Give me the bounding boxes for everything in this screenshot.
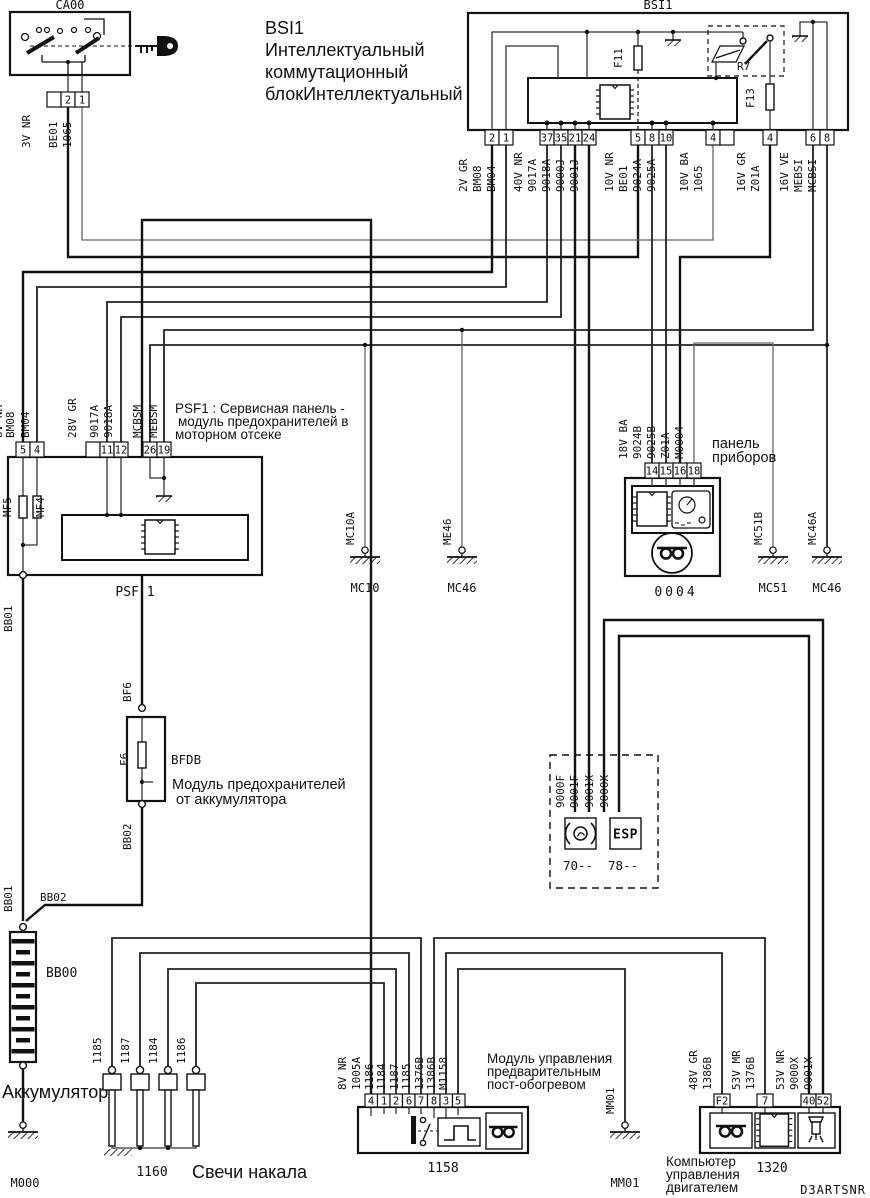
wire-label: 9001X xyxy=(583,775,596,808)
bfdb-id: BFDB xyxy=(171,752,201,767)
bsi-pin: 4 xyxy=(710,133,716,145)
bsi-pin: 21 xyxy=(569,133,582,145)
gauge-label: 2V GR xyxy=(457,159,470,192)
pin: 3 xyxy=(443,1096,449,1108)
wire-label: 9000X xyxy=(788,1057,801,1090)
wire-label: 9000J xyxy=(554,159,567,192)
gauge-label: 28V GR xyxy=(66,398,79,438)
wire-label: 9024B xyxy=(631,426,644,459)
gauge-label: 18V BA xyxy=(617,419,630,459)
module-1158-connector: 4 1 2 6 7 8 3 5 xyxy=(365,1094,465,1108)
abs-ref-label: 70-- xyxy=(563,858,593,873)
gauge-label: 40V NR xyxy=(512,152,525,192)
wire-label: Z01A xyxy=(659,432,672,459)
cluster-pin: 15 xyxy=(660,466,673,478)
note-line: двигателем xyxy=(666,1180,738,1195)
wire-label: 9018A xyxy=(540,159,553,192)
ground-id: MC46 xyxy=(813,581,842,595)
fuse-f13 xyxy=(766,84,774,110)
wire-label: MEBSI xyxy=(792,159,805,192)
wire-label: 1005A xyxy=(350,1057,363,1090)
ground-id: MM01 xyxy=(611,1176,640,1190)
ground-hatch xyxy=(104,1149,132,1156)
wire-label: 9001J xyxy=(568,159,581,192)
wire-label: 9025B xyxy=(645,426,658,459)
fuse-f11-label: F11 xyxy=(612,48,625,68)
note-line: BSI1 xyxy=(265,18,304,38)
wire-label: MEBSM xyxy=(147,405,160,438)
psf1-pin: 26 xyxy=(144,445,157,457)
ca00-pin: 1 xyxy=(79,95,85,107)
wire-label-bf6: BF6 xyxy=(121,682,134,702)
ground-id: M000 xyxy=(11,1176,40,1190)
chip-icon xyxy=(596,85,634,119)
pin: 7 xyxy=(418,1096,424,1108)
pin: 6 xyxy=(406,1096,412,1108)
gauge-label: 10V BA xyxy=(678,152,691,192)
wire-label-bb02: BB02 xyxy=(40,891,67,904)
cluster-pin: 18 xyxy=(688,466,701,478)
wire-label: 9001F xyxy=(568,775,581,808)
psf1-bottom-terminal xyxy=(20,572,27,579)
bsi-pin: 5 xyxy=(635,133,641,145)
bsi-pin: 24 xyxy=(583,133,596,145)
pin: 4 xyxy=(368,1096,374,1108)
fuse-mf5-label: MF5 xyxy=(1,497,14,517)
wire-label: 1186 xyxy=(175,1038,188,1065)
wire-label: 9017A xyxy=(526,159,539,192)
wire-label: 9024A xyxy=(631,159,644,192)
note-line: Интеллектуальный xyxy=(265,40,425,60)
wire-label-be01: BE01 xyxy=(47,122,60,149)
wire-label: 1184 xyxy=(147,1037,160,1064)
bsi-pin: 8 xyxy=(824,133,830,145)
ca00-id: CA00 xyxy=(56,0,85,12)
schematic-canvas: CA00 2 1 3V NR BE01 1065 xyxy=(0,0,870,1198)
pin: 2 xyxy=(393,1096,399,1108)
wire-label: M1158 xyxy=(437,1057,450,1090)
wire-label: 1187 xyxy=(119,1038,132,1065)
wire-label: BE01 xyxy=(617,166,630,193)
wire-label: Z01A xyxy=(749,165,762,192)
wire-label-bb01: BB01 xyxy=(2,886,15,913)
gauge-label: 16V GR xyxy=(735,152,748,192)
pin: 52 xyxy=(817,1096,830,1108)
wire-label-bb01: BB01 xyxy=(2,606,15,633)
wire-label: 9017A xyxy=(88,405,101,438)
esp-label: ESP xyxy=(613,828,638,843)
note-line: от аккумулятора xyxy=(176,792,287,808)
cluster-id: 0004 xyxy=(654,585,697,600)
wire-label: 9001X xyxy=(802,1057,815,1090)
wire-label: 9000F xyxy=(554,775,567,808)
bsi-pin: 37 xyxy=(541,133,554,145)
fuse-f6-label: F6 xyxy=(118,753,131,766)
ground-id: MC51 xyxy=(759,581,788,595)
ca00-box xyxy=(10,12,130,75)
bsi-pin: 8 xyxy=(649,133,655,145)
ca00-gauge-label: 3V NR xyxy=(20,115,33,148)
note-line: Модуль предохранителей xyxy=(172,777,346,793)
wire-label: 1386B xyxy=(701,1057,714,1090)
fuse-f11 xyxy=(634,46,642,70)
relay-coil-bar xyxy=(411,1116,416,1144)
wire-label: MC51B xyxy=(752,512,765,545)
pin: 7 xyxy=(762,1096,768,1108)
note-line: блокИнтеллектуальный xyxy=(265,84,463,104)
wire-label: 1185 xyxy=(91,1038,104,1065)
wire-label-bb02: BB02 xyxy=(121,824,134,851)
psf1-pin: 11 xyxy=(101,445,114,457)
ground-id: MC10 xyxy=(351,581,380,595)
wire-label: MCBSM xyxy=(131,405,144,438)
bsi-pin: 1 xyxy=(503,133,509,145)
gauge-label: 16V VE xyxy=(778,152,791,192)
pin: 8 xyxy=(431,1096,437,1108)
wire-label: BM04 xyxy=(19,411,32,438)
wire-label: MC46A xyxy=(806,512,819,545)
pin: F2 xyxy=(716,1096,729,1108)
battery-id: BB00 xyxy=(46,966,77,981)
bsi1-id: BSI1 xyxy=(644,0,673,12)
gauge-label: 8V NR xyxy=(336,1057,349,1090)
ca00-pin: 2 xyxy=(65,95,71,107)
note-line: пост-обогревом xyxy=(487,1077,586,1092)
wire-label: ME46 xyxy=(441,519,454,546)
wire-label: BM08 xyxy=(471,166,484,193)
wire-label: 1065 xyxy=(692,166,705,193)
esp-ref-label: 78-- xyxy=(608,858,638,873)
pin: 1 xyxy=(381,1096,387,1108)
ca00-connector: 2 1 xyxy=(47,92,89,107)
note-line: коммутационный xyxy=(265,62,408,82)
ground-icon-bsi-left xyxy=(665,40,681,46)
gauge-label: 53V NR xyxy=(774,1050,787,1090)
relay-r7-label: R7 xyxy=(737,60,750,73)
note-line: моторном отсеке xyxy=(175,427,282,442)
ground-icon-psf1 xyxy=(156,496,172,502)
wire-label: BM08 xyxy=(4,412,17,439)
cluster-pin: 16 xyxy=(674,466,687,478)
ground-icon-bsi-right xyxy=(792,36,808,42)
wire-label-1065: 1065 xyxy=(61,122,74,149)
wire-label: 9000X xyxy=(598,775,611,808)
bsi-pin: 6 xyxy=(810,133,816,145)
document-code: D3ARTSNR xyxy=(800,1183,866,1197)
wiring-diagram-page: CA00 2 1 3V NR BE01 1065 xyxy=(0,0,870,1198)
fuse-mf5 xyxy=(19,496,27,518)
ecu-note: Компьютер управления двигателем xyxy=(666,1154,740,1195)
fuse-mf4-label: MF4 xyxy=(34,497,47,517)
psf1-pin: 4 xyxy=(34,445,40,457)
glow-id: 1160 xyxy=(136,1165,167,1180)
pin: 5 xyxy=(455,1096,461,1108)
bsi-pin: 35 xyxy=(555,133,568,145)
bsi-pin: 4 xyxy=(767,133,773,145)
wire-label: 1376B xyxy=(744,1057,757,1090)
chip-icon xyxy=(756,1114,792,1146)
ground-id: MC46 xyxy=(448,581,477,595)
battery-note: Аккумулятор xyxy=(2,1082,108,1102)
module-1158-id: 1158 xyxy=(427,1161,458,1176)
wire-label: 9025A xyxy=(645,159,658,192)
gauge-label: 10V NR xyxy=(603,152,616,192)
gauge-label: 48V GR xyxy=(687,1050,700,1090)
gauge-label: 53V MR xyxy=(730,1050,743,1090)
ecu-id: 1320 xyxy=(756,1161,787,1176)
fuse-f6 xyxy=(138,742,146,768)
psf1-pin: 19 xyxy=(158,445,171,457)
gauge-icon xyxy=(672,491,710,528)
wire-label: MM01 xyxy=(604,1088,617,1115)
wire-label: BM04 xyxy=(485,165,498,192)
glow-note: Свечи накала xyxy=(192,1162,308,1182)
fuse-f13-label: F13 xyxy=(744,88,757,108)
psf1-connectors: 5 4 11 12 26 19 xyxy=(16,442,171,457)
psf1-id: PSF 1 xyxy=(115,585,154,600)
cluster-connector: 14 15 16 18 xyxy=(645,463,701,478)
psf1-pin: 5 xyxy=(20,445,26,457)
psf1-pin: 12 xyxy=(115,445,128,457)
note-line: приборов xyxy=(712,450,777,466)
bsi-pin: 10 xyxy=(660,133,673,145)
wire-label: MC10A xyxy=(344,512,357,545)
cluster-pin: 14 xyxy=(646,466,659,478)
bsi-pin: 2 xyxy=(489,133,495,145)
bsi1-inner-box xyxy=(528,78,737,123)
chip-icon xyxy=(141,520,179,554)
chip-icon xyxy=(633,492,671,526)
wire-label: 1184 xyxy=(375,1063,388,1090)
wire-label: M0004 xyxy=(673,426,686,459)
wire-label: 1185 xyxy=(400,1064,413,1091)
pin: 40 xyxy=(803,1096,816,1108)
timer-box xyxy=(438,1118,480,1146)
wire-label: MCBSI xyxy=(806,159,819,192)
wire-label: 9018A xyxy=(102,405,115,438)
